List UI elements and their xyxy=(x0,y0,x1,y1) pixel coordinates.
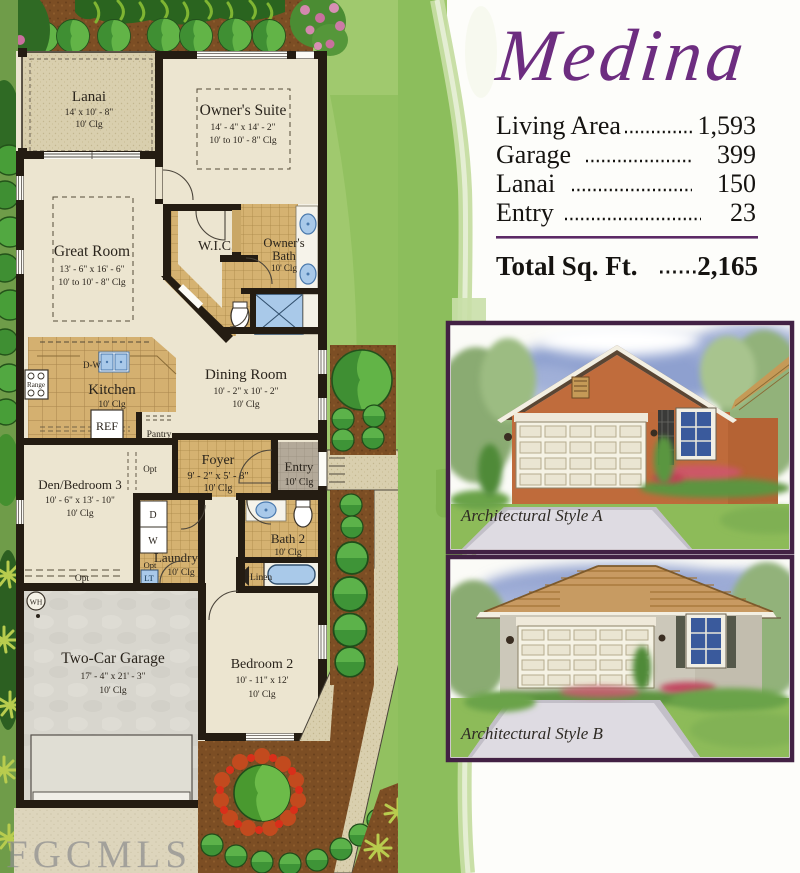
svg-text:Dining Room: Dining Room xyxy=(205,367,287,383)
svg-text:FGCMLS: FGCMLS xyxy=(6,833,192,873)
svg-text:10' - 2" x 10' - 2": 10' - 2" x 10' - 2" xyxy=(213,387,278,397)
svg-text:13' - 6" x 16' - 6": 13' - 6" x 16' - 6" xyxy=(59,265,124,275)
svg-text:10' Clg: 10' Clg xyxy=(75,120,103,130)
svg-text:W: W xyxy=(148,536,158,547)
svg-text:10' Clg: 10' Clg xyxy=(232,400,260,410)
svg-text:10' Clg: 10' Clg xyxy=(98,400,126,410)
svg-text:Garage: Garage xyxy=(496,140,571,169)
svg-text:Owner's: Owner's xyxy=(263,236,304,250)
svg-text:Den/Bedroom 3: Den/Bedroom 3 xyxy=(38,477,121,492)
svg-text:10' to 10' - 8" Clg: 10' to 10' - 8" Clg xyxy=(209,136,276,146)
svg-text:14' - 4" x 14' - 2": 14' - 4" x 14' - 2" xyxy=(210,123,275,133)
svg-text:Medina: Medina xyxy=(492,15,752,97)
svg-text:10' Clg: 10' Clg xyxy=(204,483,233,494)
svg-text:10' Clg: 10' Clg xyxy=(66,509,94,519)
svg-text:D: D xyxy=(149,510,156,521)
svg-text:10' to 10' - 8" Clg: 10' to 10' - 8" Clg xyxy=(58,278,125,288)
svg-text:1,593: 1,593 xyxy=(698,111,757,140)
svg-text:Total Sq. Ft.: Total Sq. Ft. xyxy=(496,251,638,281)
svg-text:Opt: Opt xyxy=(143,464,157,474)
svg-text:Foyer: Foyer xyxy=(202,453,235,468)
svg-text:Linen: Linen xyxy=(250,573,272,583)
svg-text:Great Room: Great Room xyxy=(54,243,130,260)
svg-text:10' - 11" x 12': 10' - 11" x 12' xyxy=(236,676,289,686)
svg-text:2,165: 2,165 xyxy=(697,251,758,281)
svg-text:Range: Range xyxy=(27,381,45,389)
svg-text:Opt: Opt xyxy=(75,574,90,584)
svg-text:LT: LT xyxy=(144,573,154,583)
svg-text:399: 399 xyxy=(717,140,756,169)
svg-text:10' Clg: 10' Clg xyxy=(285,477,314,488)
svg-text:W.I.C.: W.I.C. xyxy=(198,239,234,254)
svg-text:Architectural Style B: Architectural Style B xyxy=(460,724,604,743)
svg-text:10' Clg: 10' Clg xyxy=(99,686,127,696)
svg-text:Lanai: Lanai xyxy=(72,89,106,105)
svg-text:Lanai: Lanai xyxy=(496,169,555,198)
svg-text:10' Clg: 10' Clg xyxy=(271,263,297,273)
svg-text:150: 150 xyxy=(717,169,756,198)
svg-text:10' Clg: 10' Clg xyxy=(274,548,302,558)
svg-text:10' Clg: 10' Clg xyxy=(248,690,276,700)
svg-text:Kitchen: Kitchen xyxy=(88,382,136,398)
svg-text:Bath: Bath xyxy=(272,249,296,263)
svg-text:Living Area: Living Area xyxy=(496,111,621,140)
svg-text:D-W: D-W xyxy=(83,360,101,370)
svg-text:17' - 4" x 21' - 3": 17' - 4" x 21' - 3" xyxy=(80,672,145,682)
svg-text:23: 23 xyxy=(730,198,756,227)
svg-text:14' x 10' - 8": 14' x 10' - 8" xyxy=(65,108,114,118)
svg-text:Bath 2: Bath 2 xyxy=(271,531,305,546)
svg-text:Entry: Entry xyxy=(496,198,554,227)
svg-text:Owner's Suite: Owner's Suite xyxy=(200,102,287,119)
svg-text:Two-Car Garage: Two-Car Garage xyxy=(61,650,165,667)
svg-text:10' Clg: 10' Clg xyxy=(167,568,195,578)
svg-text:Bedroom 2: Bedroom 2 xyxy=(231,657,294,672)
svg-text:Entry: Entry xyxy=(285,459,314,474)
svg-text:10' - 6" x 13' - 10": 10' - 6" x 13' - 10" xyxy=(45,496,115,506)
svg-text:REF: REF xyxy=(96,419,118,433)
svg-text:Opt: Opt xyxy=(144,560,157,570)
svg-text:WH: WH xyxy=(30,598,43,607)
svg-text:Architectural Style A: Architectural Style A xyxy=(460,506,603,525)
